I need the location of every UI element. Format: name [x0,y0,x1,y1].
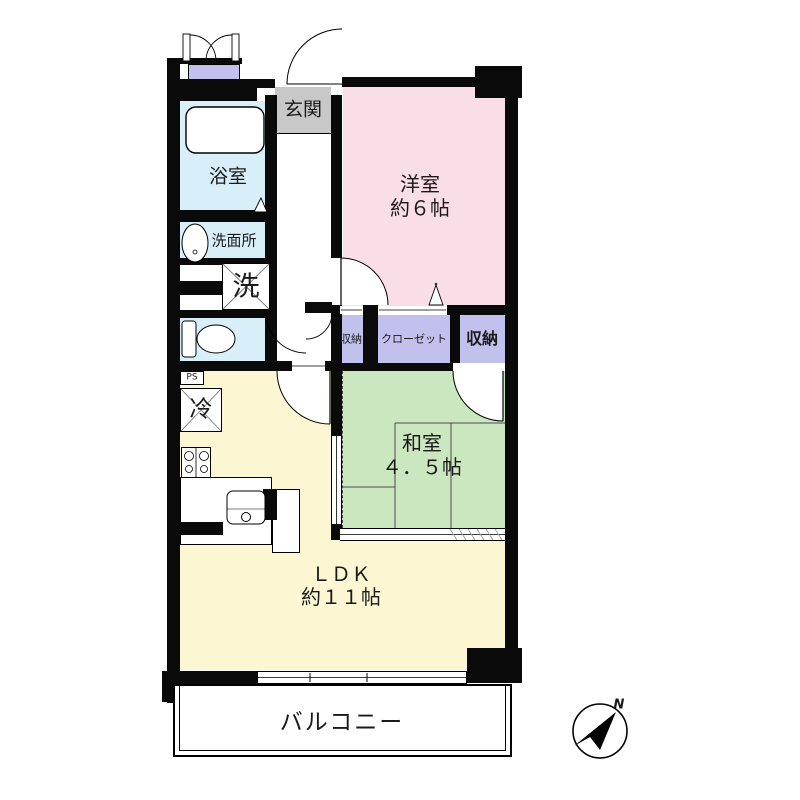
western-room-label: 洋室 [400,174,440,194]
double-door-arc-left [190,35,216,61]
genkan-label: 玄関 [284,101,322,120]
japanese-room-label: 和室 [402,433,442,453]
double-door-symbol [183,34,239,61]
entrance-door-arc [287,29,342,84]
toilet-bowl [197,325,235,353]
closet-label: クローゼット [381,334,447,345]
toilet-tank [182,321,196,357]
toilet-door-arc-left [266,313,306,353]
bathtub [186,107,264,153]
compass-north-label: N [614,699,625,712]
washing-machine-label: 洗 [233,274,260,301]
washroom-label: 洗面所 [211,234,256,249]
balcony-label: バルコニー [280,712,405,735]
toilet-door-arc-right [306,313,332,339]
bath-fold-marker [254,198,267,212]
kitchen-sink [227,491,265,524]
floorplan-canvas: 玄関 洋室 約６帖 浴室 洗面所 洗 PS 冷 収納 クローゼット 収納 和室 … [0,0,800,800]
bathroom-label: 浴室 [209,168,247,187]
closet-fold-dot [435,283,438,286]
sink-basin [182,224,208,262]
ldk-door-swing [277,371,330,424]
storage-left-label: 収納 [340,334,362,345]
refrigerator-label: 冷 [190,399,213,422]
western-room-size: 約６帖 [390,198,450,218]
western-door-swing [341,258,388,305]
linework-overlay [0,0,800,800]
washitsu-door-swing [453,371,503,421]
japanese-room-size: ４．５帖 [382,457,462,477]
double-door-arc-right [206,35,232,61]
pipe-space-label: PS [186,374,197,383]
stove-burners [185,448,209,477]
closet-fold-marker [429,285,443,305]
storage-right-label: 収納 [466,331,498,347]
ldk-size: 約１１帖 [301,587,381,607]
ldk-label: ＬＤＫ [311,564,371,584]
